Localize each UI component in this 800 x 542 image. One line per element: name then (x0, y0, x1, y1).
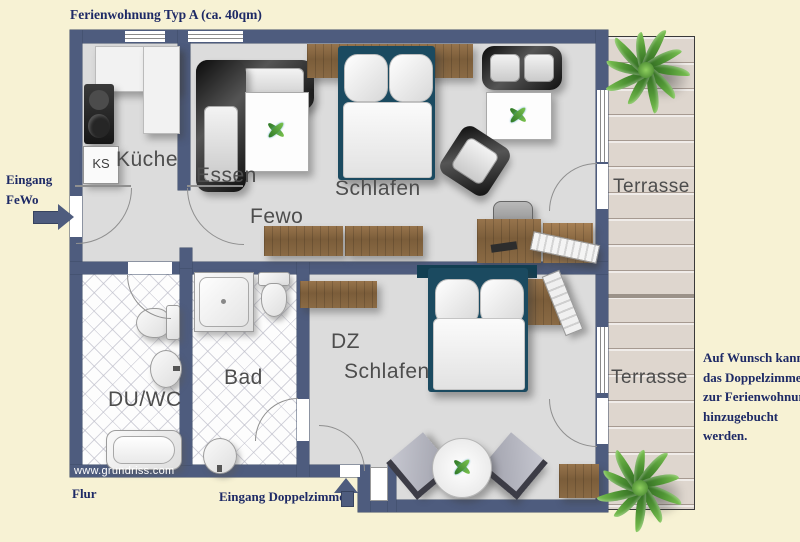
room-label-fewo: Fewo (250, 205, 303, 229)
sideboard-fewo-1 (264, 226, 343, 256)
shower (194, 272, 254, 332)
stove (84, 84, 114, 144)
window-top-1 (125, 31, 165, 42)
bathtub-basin (113, 436, 175, 464)
entrance-dz-arrow-icon (342, 492, 353, 506)
room-label-terrasse-top: Terrasse (613, 176, 690, 198)
wall-left (70, 30, 82, 477)
table-plant-icon (450, 455, 474, 479)
window-top-2 (188, 31, 243, 42)
door-leaf (75, 185, 131, 187)
sofa-two-seater (482, 46, 562, 90)
faucet (217, 465, 222, 472)
pillow (344, 54, 388, 102)
note-line3: zur Ferienwohnung (703, 387, 800, 407)
wall-hall-stub (180, 248, 192, 268)
room-label-dz-line1: DZ (331, 330, 360, 354)
shower-drain (221, 299, 226, 304)
window-right-lower (597, 327, 608, 393)
wardrobe-dz-left (300, 281, 377, 308)
entrance-fewo-line1: Eingang (6, 170, 52, 190)
bad-door-opening (297, 399, 309, 441)
sideboard-fewo-2 (345, 226, 423, 256)
armchair-cushion (450, 136, 500, 186)
watermark: www.grundriss.com (74, 465, 174, 477)
floorplan-canvas: KS (0, 0, 800, 542)
entrance-fewo-label: Eingang FeWo (6, 170, 52, 210)
duvet (343, 102, 432, 178)
duvet (433, 318, 525, 390)
room-label-essen: Essen (196, 164, 257, 188)
room-label-dz-line2: Schlafen (344, 360, 430, 384)
note-line5: werden. (703, 426, 800, 446)
table-plant-icon (264, 118, 288, 142)
room-label-schlafen: Schlafen (335, 177, 421, 201)
table-plant-icon (506, 103, 530, 127)
sink-duwc (150, 350, 182, 388)
note-line4: hinzugebucht (703, 407, 800, 427)
room-label-bad: Bad (224, 366, 263, 390)
note-text: Auf Wunsch kann das Doppelzimmer zur Fer… (703, 348, 800, 446)
entrance-fewo-arrow-icon (34, 212, 58, 223)
dz-rear-door (370, 467, 388, 501)
stove-burner (88, 114, 110, 138)
pillow (389, 54, 433, 102)
fridge-ks-box: KS (83, 146, 119, 184)
desk-items (491, 241, 518, 253)
dz-cabinet (559, 464, 599, 498)
note-line2: das Doppelzimmer (703, 368, 800, 388)
kitchen-counter-side (143, 46, 180, 134)
bed-fewo (338, 46, 435, 180)
note-line1: Auf Wunsch kann (703, 348, 800, 368)
entrance-fewo-line2: FeWo (6, 190, 52, 210)
entrance-fewo-arrow-head-icon (58, 204, 74, 230)
terrace-door-upper-opening (597, 164, 608, 209)
room-label-duwc: DU/WC (108, 388, 182, 412)
plant-icon (602, 26, 690, 114)
flur-label: Flur (72, 486, 97, 502)
plant-icon (596, 444, 684, 532)
faucet (173, 366, 180, 371)
page-title: Ferienwohnung Typ A (ca. 40qm) (70, 7, 262, 23)
entrance-dz-label: Eingang Doppelzimmer (219, 489, 351, 505)
duwc-door-opening (128, 262, 172, 274)
sofa-cushion (524, 54, 554, 82)
wall-duwc-bad-divider (180, 262, 192, 465)
entrance-dz-arrow-head-icon (334, 478, 358, 493)
sink-bad (203, 438, 237, 474)
toilet-bad (261, 283, 287, 317)
stove-burner (89, 90, 109, 110)
bathtub (106, 430, 182, 470)
room-label-terrasse-bottom: Terrasse (611, 367, 688, 389)
room-label-kueche: Küche (116, 148, 178, 172)
fridge-ks-label: KS (84, 156, 118, 171)
bed-dz (428, 268, 528, 392)
sofa-cushion (490, 54, 520, 82)
terrace-divider (608, 294, 694, 298)
terrace-door-lower-opening (597, 398, 608, 444)
